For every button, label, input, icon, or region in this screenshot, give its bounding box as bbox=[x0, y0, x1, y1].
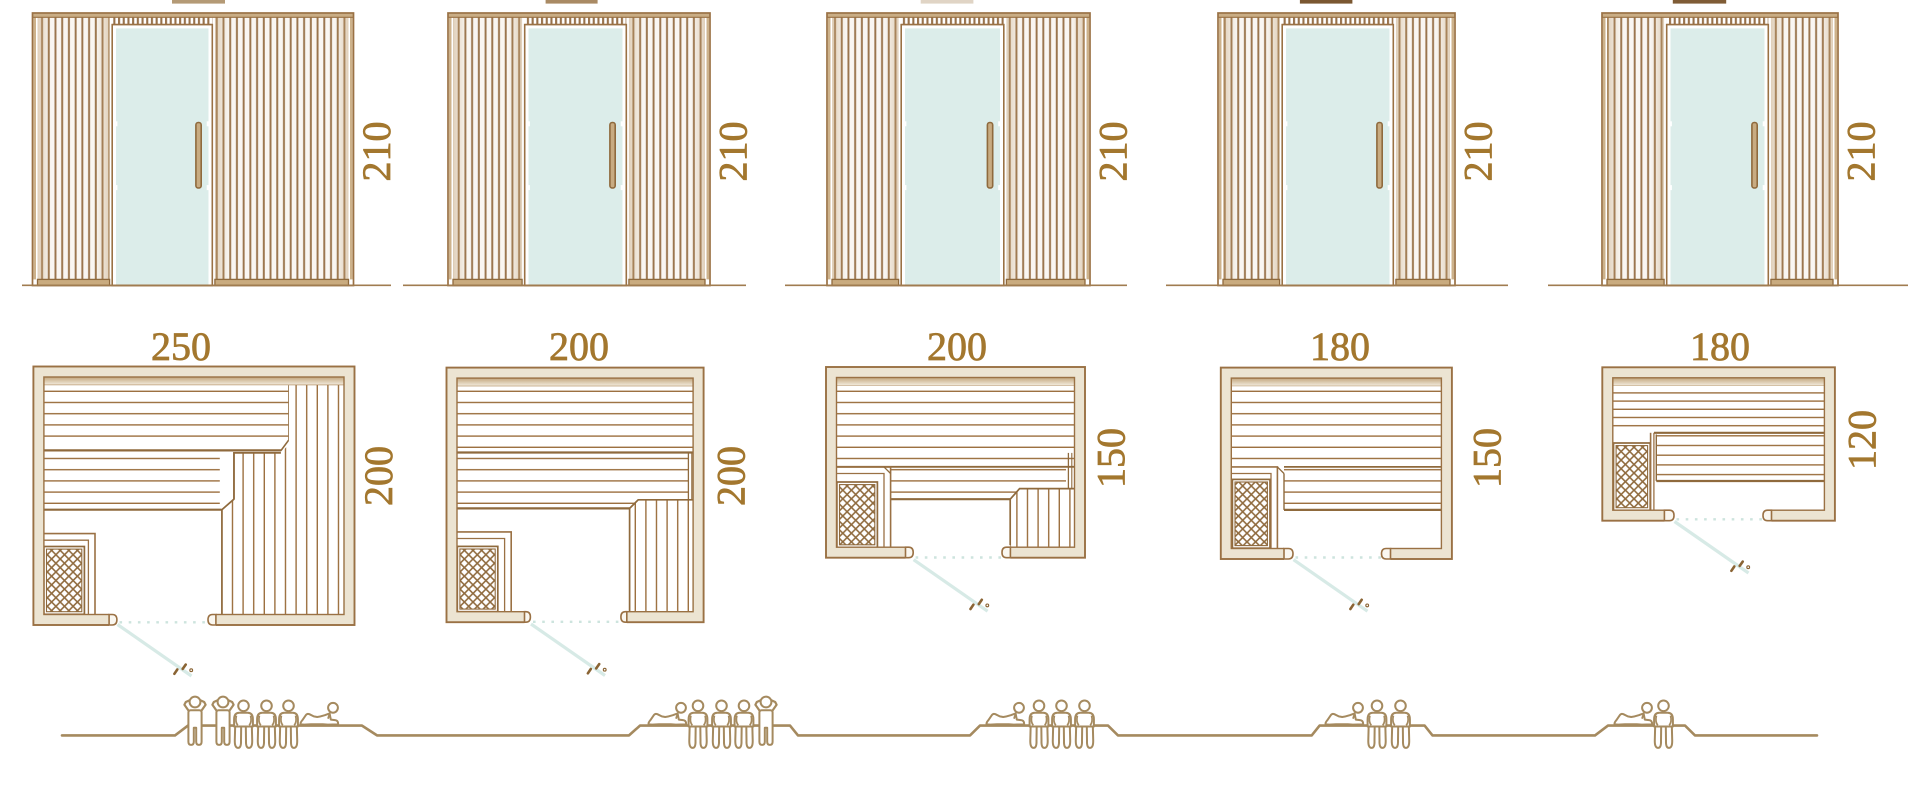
svg-text:200: 200 bbox=[356, 446, 401, 506]
svg-text:210: 210 bbox=[1456, 122, 1501, 182]
svg-text:200: 200 bbox=[549, 324, 609, 369]
svg-text:210: 210 bbox=[1839, 122, 1884, 182]
svg-text:150: 150 bbox=[1465, 428, 1510, 488]
svg-text:200: 200 bbox=[927, 324, 987, 369]
svg-text:210: 210 bbox=[1091, 122, 1136, 182]
svg-text:120: 120 bbox=[1840, 410, 1885, 470]
svg-text:210: 210 bbox=[354, 122, 399, 182]
svg-text:210: 210 bbox=[711, 122, 756, 182]
svg-text:150: 150 bbox=[1089, 428, 1134, 488]
svg-text:200: 200 bbox=[709, 446, 754, 506]
svg-text:180: 180 bbox=[1690, 324, 1750, 369]
svg-text:250: 250 bbox=[151, 324, 211, 369]
svg-text:180: 180 bbox=[1310, 324, 1370, 369]
